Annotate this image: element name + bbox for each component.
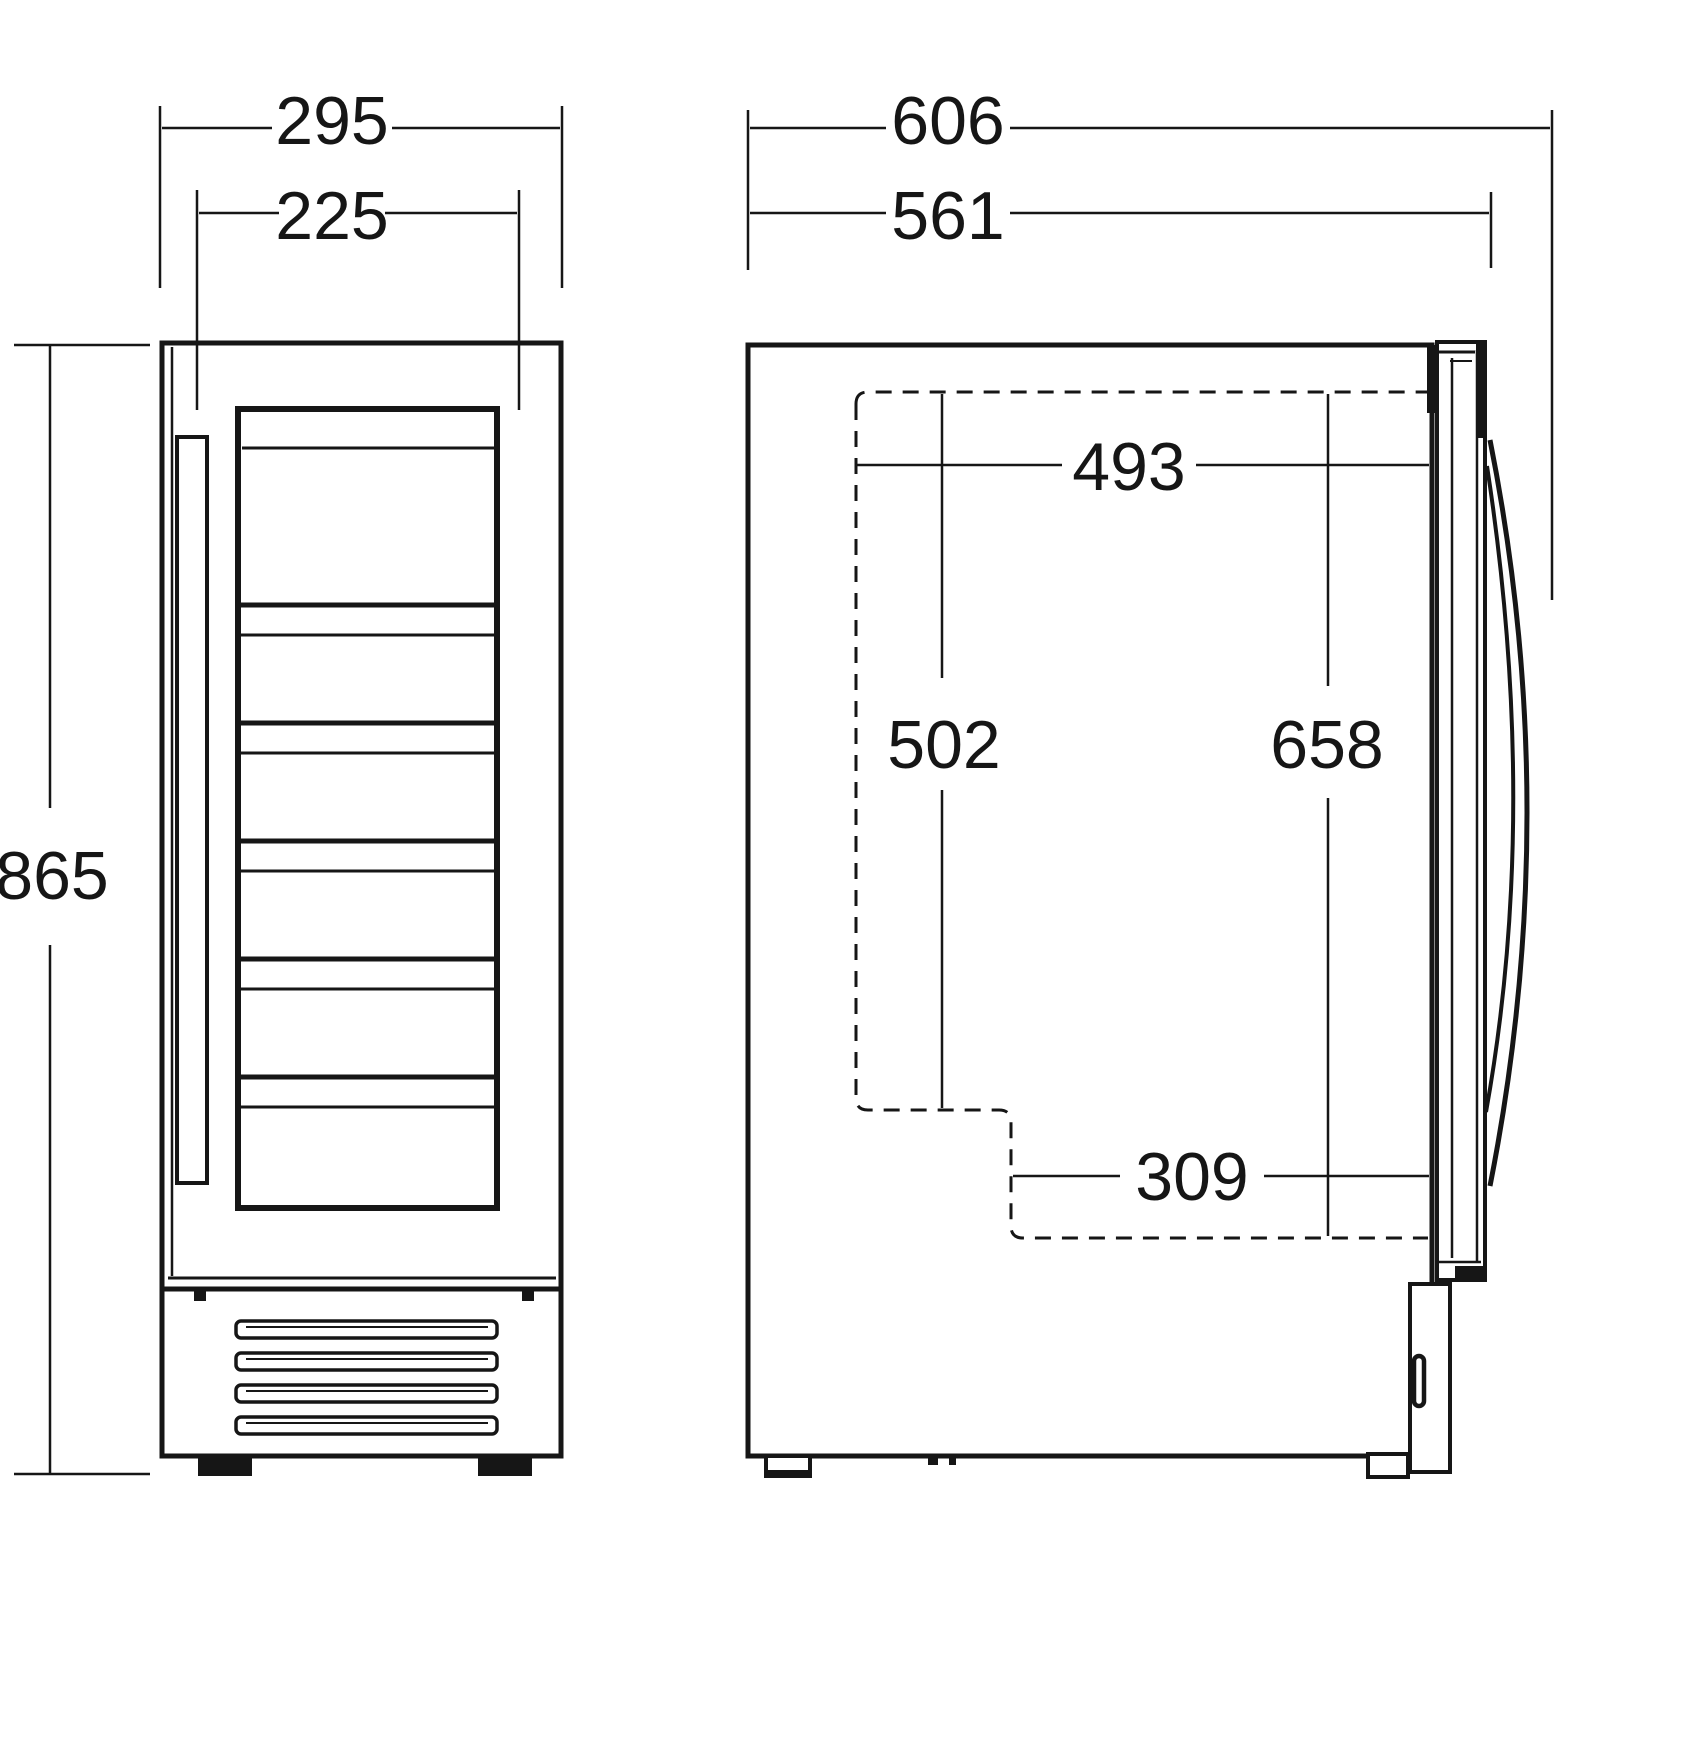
front-right-foot [478,1456,532,1476]
front-base-left-tab [194,1291,206,1301]
side-bottom-tab [928,1456,938,1465]
side-hinge-slot [1414,1356,1424,1406]
diagram-canvas: 295 225 865 606 561 493 502 658 309 [0,0,1685,1761]
side-handle-top-mount [1476,342,1487,438]
dim-label-overall-width: 295 [275,83,388,159]
dim-label-body-depth: 561 [891,178,1004,254]
side-door-bottom-cap [1455,1266,1483,1280]
dim-label-overall-depth: 606 [891,83,1004,159]
appliance-dimension-diagram: 295 225 865 606 561 493 502 658 309 [0,0,1685,1761]
dim-label-recess-height-front: 502 [887,707,1000,783]
front-base-right-tab [522,1291,534,1301]
dim-label-inner-width: 225 [275,178,388,254]
side-handle-outer-arc [1490,440,1527,1186]
front-handle-bar [177,437,207,1183]
side-right-foot [1368,1454,1408,1477]
side-cabinet-outline [748,345,1432,1456]
dim-label-recess-depth-lower: 309 [1135,1139,1248,1215]
dim-label-recess-height-rear: 658 [1270,707,1383,783]
dim-label-recess-depth: 493 [1072,429,1185,505]
front-view [162,343,561,1476]
side-bottom-tab [949,1456,956,1465]
side-view [748,342,1527,1477]
front-left-foot [198,1456,252,1476]
front-shelf-frame [238,409,497,1208]
dim-label-overall-height: 865 [0,838,109,914]
